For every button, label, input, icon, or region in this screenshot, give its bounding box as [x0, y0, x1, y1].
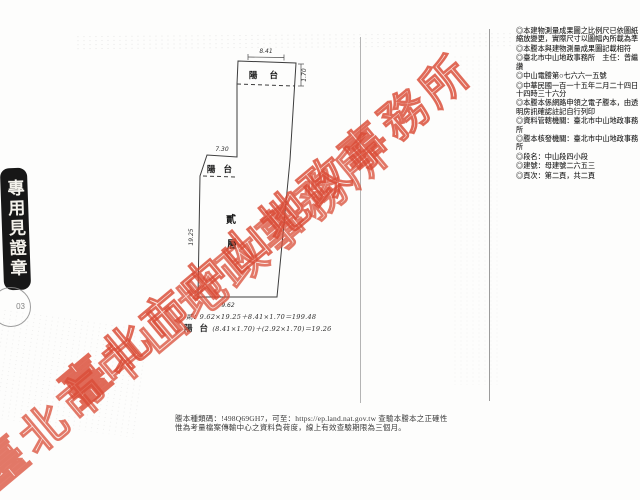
floor-label-char-1: 貳 [226, 213, 236, 226]
note-line: ◎頁次：第二頁，共二頁 [516, 172, 639, 180]
footer-line-1: 謄本種類碼：!498Q69GH7，可至：https://ep.land.nat.… [175, 414, 595, 423]
note-line: ◎本建物測量成果圖之比例尺已依圖紙縮放變更，實際尺寸以圖幅內所載為準 [516, 27, 639, 44]
dimension-bottom-label: 9.62 [221, 302, 235, 309]
dimension-top-line [248, 57, 284, 58]
note-line: ◎建號：母建號二六五三 [516, 162, 639, 170]
floor-label-char-2: 層 [227, 239, 237, 251]
plan-outline [198, 61, 296, 297]
balcony-label-mid: 陽 台 [207, 164, 235, 174]
dimension-left-label: 19.25 [188, 228, 195, 245]
verification-footer: 謄本種類碼：!498Q69GH7，可至：https://ep.land.nat.… [175, 414, 595, 433]
note-line: ◎資料管轄機關：臺北市中山地政事務所 [516, 117, 639, 134]
dimension-top-label: 8.41 [259, 48, 272, 55]
balcony-dashed-line-top [237, 84, 295, 86]
transcript-notes-column: ◎本建物測量成果圖之比例尺已依圖紙縮放變更，實際尺寸以圖幅內所載為準 ◎本謄本與… [516, 27, 639, 181]
note-line: ◎謄本核發機關：臺北市中山地政事務所 [516, 135, 639, 152]
note-line: ◎本謄本係網路申領之電子謄本，由透明房訊確認註記自行列印 [516, 99, 639, 116]
note-line: ◎中華民國一百一十五年二月二十四日十四時三十六分 [516, 82, 639, 99]
scanned-document-page: { "watermark": { "text": "臺北市中山地政事務所", "… [0, 0, 640, 452]
note-line: ◎臺北市中山地政事務所 主任：曾繼讚 [516, 54, 639, 71]
balcony-label-top: 陽 台 [249, 70, 283, 80]
dimension-step-label: 7.30 [215, 146, 229, 153]
dimension-right-label: 1.70 [301, 68, 308, 82]
area-formula-2-prefix: 陽 台 [184, 324, 210, 334]
area-formula-2-body: (8.41×1.70)＋(2.92×1.70)＝19.26 [212, 325, 331, 333]
note-line: ◎中山電謄第○七六六一五號 [516, 72, 639, 80]
note-line: ◎段名：中山段四小段 [516, 153, 639, 161]
area-formula-line-2: 陽 台 (8.41×1.70)＋(2.92×1.70)＝19.26 [184, 322, 332, 334]
note-line: ◎本謄本與建物測量成果圖記載相符 [516, 45, 639, 53]
balcony-dashed-line-mid [203, 176, 237, 177]
footer-line-2: 惟為考量檔案傳輸中心之資料負荷度，線上有效查驗期限為三個月。 [175, 423, 595, 432]
area-formula-line-1: 貳：9.62×19.25＋8.41×1.70＝199.48 [186, 311, 316, 321]
